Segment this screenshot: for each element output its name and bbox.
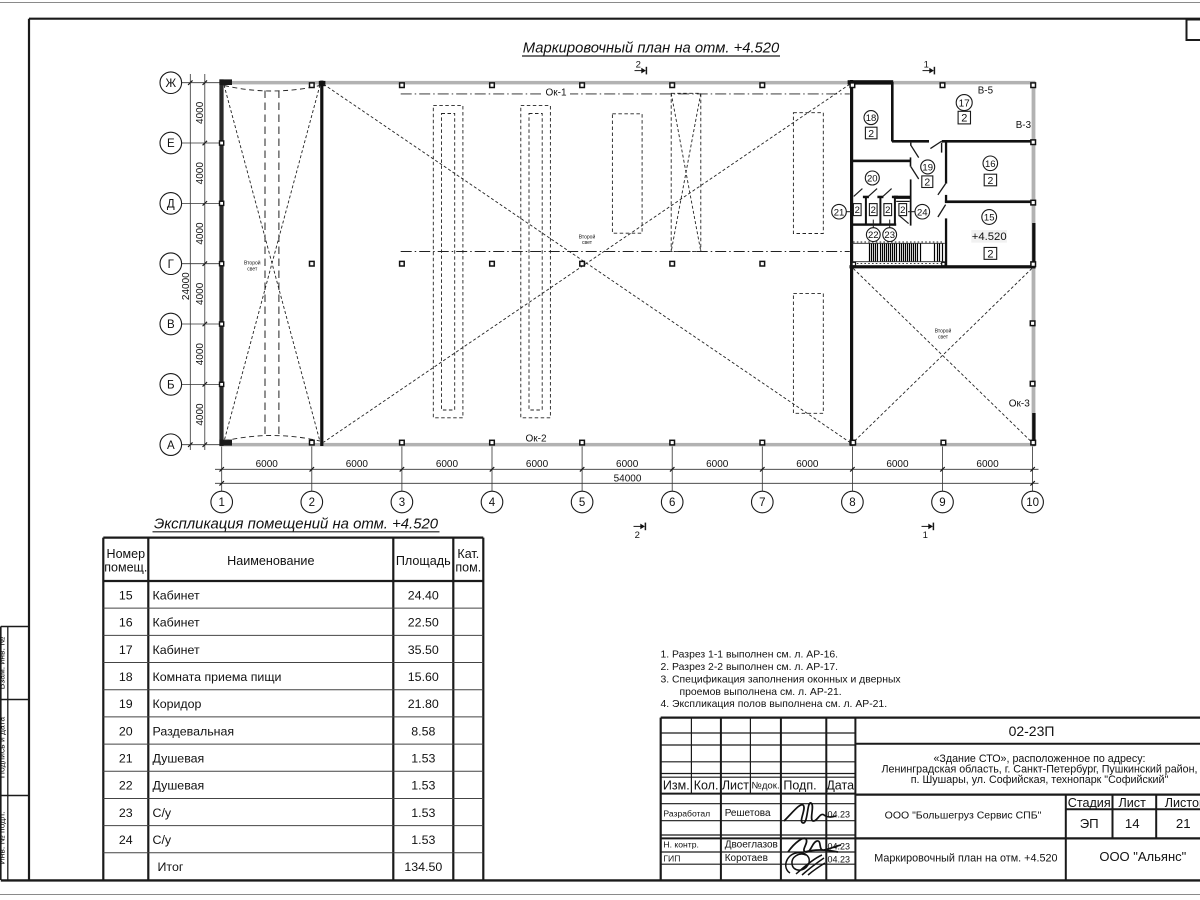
svg-text:1.53: 1.53 [411, 779, 435, 793]
svg-text:Подп.: Подп. [783, 778, 816, 792]
svg-text:22.50: 22.50 [408, 616, 439, 630]
svg-text:21: 21 [834, 207, 845, 218]
svg-text:4. Экспликация полов выполнена: 4. Экспликация полов выполнена см. л. АР… [661, 699, 888, 710]
svg-text:20: 20 [867, 174, 878, 185]
svg-text:17: 17 [959, 98, 971, 109]
svg-text:2. Разрез 2-2 выполнен см. л.: 2. Разрез 2-2 выполнен см. л. АР-17. [661, 662, 839, 673]
svg-text:2: 2 [900, 205, 905, 216]
svg-text:4000: 4000 [195, 282, 206, 305]
svg-text:проемов выполнена см. л. АР-21: проемов выполнена см. л. АР-21. [680, 687, 842, 698]
svg-text:В-3: В-3 [1016, 120, 1032, 131]
svg-text:1: 1 [218, 497, 224, 509]
svg-text:6000: 6000 [526, 459, 549, 470]
svg-text:3. Спецификация заполнения око: 3. Спецификация заполнения оконных и две… [661, 674, 902, 686]
svg-text:С/у: С/у [153, 806, 172, 820]
svg-text:Маркировочный план на отм. +4.: Маркировочный план на отм. +4.520 [523, 41, 780, 57]
svg-text:Изм.: Изм. [663, 778, 690, 792]
svg-text:6000: 6000 [256, 459, 279, 470]
svg-text:Комната приема пищи: Комната приема пищи [153, 670, 282, 684]
svg-text:Ок-2: Ок-2 [525, 434, 546, 445]
svg-text:2: 2 [885, 205, 890, 216]
svg-text:Кат.: Кат. [457, 547, 479, 561]
svg-text:35.50: 35.50 [408, 643, 439, 657]
svg-text:24: 24 [119, 833, 133, 847]
svg-text:1.53: 1.53 [411, 751, 435, 765]
svg-text:4: 4 [489, 497, 496, 509]
svg-text:Кабинет: Кабинет [153, 616, 200, 630]
svg-text:Экспликация помещений на отм.: Экспликация помещений на отм. +4.520 [154, 517, 439, 533]
svg-text:Душевая: Душевая [153, 779, 205, 793]
svg-text:Раздевальная: Раздевальная [153, 724, 235, 738]
svg-text:Маркировочный план на отм. +4.: Маркировочный план на отм. +4.520 [874, 852, 1057, 864]
svg-text:14: 14 [1125, 816, 1140, 831]
svg-text:Ж: Ж [165, 78, 176, 90]
svg-text:2: 2 [309, 497, 315, 509]
svg-text:пом.: пом. [455, 561, 481, 575]
svg-text:ООО "Большегруз Сервис СПБ": ООО "Большегруз Сервис СПБ" [885, 809, 1042, 821]
svg-text:6000: 6000 [796, 459, 819, 470]
svg-text:ЭП: ЭП [1080, 816, 1099, 831]
svg-text:В-5: В-5 [978, 85, 994, 96]
svg-text:Двоеглазов: Двоеглазов [725, 839, 778, 850]
svg-text:23: 23 [119, 806, 133, 820]
svg-text:6000: 6000 [346, 459, 369, 470]
svg-text:4000: 4000 [195, 101, 206, 124]
svg-text:15.60: 15.60 [408, 670, 439, 684]
svg-text:8: 8 [849, 497, 855, 509]
svg-text:Итог: Итог [158, 860, 184, 874]
svg-text:23: 23 [884, 230, 895, 241]
svg-text:24000: 24000 [181, 272, 192, 300]
svg-text:15: 15 [984, 213, 995, 224]
svg-text:1.53: 1.53 [411, 806, 435, 820]
svg-text:6000: 6000 [976, 459, 999, 470]
svg-text:1: 1 [923, 530, 928, 541]
svg-text:24: 24 [917, 207, 928, 218]
svg-text:свет: свет [938, 334, 949, 340]
svg-text:6000: 6000 [616, 459, 639, 470]
svg-text:6000: 6000 [436, 459, 459, 470]
svg-text:2: 2 [961, 113, 967, 125]
svg-text:Ок-3: Ок-3 [1009, 399, 1030, 410]
svg-text:19: 19 [922, 163, 933, 174]
svg-text:Инв. № подл.: Инв. № подл. [0, 812, 7, 865]
svg-text:Душевая: Душевая [153, 751, 205, 765]
svg-text:21: 21 [119, 751, 133, 765]
svg-text:Д: Д [167, 199, 175, 211]
svg-text:2: 2 [635, 530, 640, 541]
svg-text:15: 15 [119, 588, 133, 602]
svg-text:Б: Б [167, 380, 175, 392]
svg-text:2: 2 [855, 205, 860, 216]
svg-text:134.50: 134.50 [404, 860, 442, 874]
svg-text:4000: 4000 [195, 162, 206, 185]
svg-text:2: 2 [868, 128, 874, 140]
svg-text:21.80: 21.80 [408, 697, 439, 711]
svg-text:Кабинет: Кабинет [153, 588, 200, 602]
svg-text:помещ.: помещ. [104, 561, 147, 575]
svg-text:п. Шушары, ул. Софийская, техн: п. Шушары, ул. Софийская, технопарк "Соф… [911, 774, 1169, 786]
svg-text:1. Разрез 1-1 выполнен см. л.: 1. Разрез 1-1 выполнен см. л. АР-16. [661, 650, 839, 661]
svg-text:54000: 54000 [614, 473, 642, 484]
svg-text:19: 19 [119, 697, 133, 711]
svg-text:7: 7 [759, 497, 765, 509]
svg-text:22: 22 [119, 779, 133, 793]
svg-text:6: 6 [669, 497, 675, 509]
svg-text:ГИП: ГИП [663, 853, 680, 863]
svg-text:2: 2 [987, 175, 993, 187]
svg-text:16: 16 [985, 159, 996, 170]
svg-text:Н. контр.: Н. контр. [663, 840, 698, 850]
svg-text:2: 2 [871, 205, 876, 216]
svg-text:Площадь: Площадь [396, 554, 451, 568]
svg-text:2: 2 [924, 176, 930, 188]
svg-text:С/у: С/у [153, 833, 172, 847]
svg-text:6000: 6000 [886, 459, 909, 470]
svg-text:ООО "Альянс": ООО "Альянс" [1099, 849, 1186, 864]
svg-text:17: 17 [119, 643, 133, 657]
svg-text:свет: свет [582, 240, 593, 246]
svg-text:Е: Е [167, 138, 175, 150]
svg-text:2: 2 [987, 248, 993, 260]
svg-text:10: 10 [1026, 497, 1039, 509]
svg-text:Кабинет: Кабинет [153, 643, 200, 657]
svg-text:Лист: Лист [1119, 796, 1147, 810]
svg-text:20: 20 [119, 724, 133, 738]
svg-text:02-23П: 02-23П [1009, 723, 1055, 739]
svg-text:В: В [167, 319, 175, 331]
svg-text:16: 16 [119, 616, 133, 630]
svg-text:Ок-1: Ок-1 [545, 87, 566, 98]
svg-text:21: 21 [1176, 816, 1191, 831]
svg-text:Подпись и дата: Подпись и дата [0, 717, 7, 778]
svg-text:04.23: 04.23 [828, 855, 851, 865]
svg-text:3: 3 [399, 497, 405, 509]
svg-text:Лист: Лист [722, 778, 749, 792]
svg-text:5: 5 [579, 497, 585, 509]
svg-text:4000: 4000 [195, 403, 206, 426]
svg-text:свет: свет [247, 266, 258, 272]
svg-text:Разработал: Разработал [663, 809, 710, 819]
svg-text:24.40: 24.40 [408, 588, 439, 602]
svg-text:1: 1 [924, 59, 929, 70]
svg-text:А: А [167, 440, 175, 452]
svg-text:Номер: Номер [107, 547, 146, 561]
svg-text:Взам. инв. №: Взам. инв. № [0, 637, 7, 690]
svg-text:Дата: Дата [826, 778, 854, 792]
svg-text:6000: 6000 [706, 459, 729, 470]
svg-text:2: 2 [636, 59, 641, 70]
svg-text:9: 9 [939, 497, 945, 509]
svg-text:4000: 4000 [195, 222, 206, 245]
svg-text:Решетова: Решетова [725, 808, 771, 819]
svg-text:Наименование: Наименование [227, 554, 314, 568]
svg-text:4000: 4000 [195, 343, 206, 366]
svg-text:Г: Г [168, 259, 175, 271]
svg-text:1.53: 1.53 [411, 833, 435, 847]
svg-text:Кол.: Кол. [694, 778, 719, 792]
svg-text:04.23: 04.23 [828, 810, 851, 820]
svg-text:Коридор: Коридор [153, 697, 202, 711]
svg-text:Стадия: Стадия [1068, 796, 1111, 810]
svg-text:+4.520: +4.520 [972, 231, 1007, 243]
svg-text:Листов: Листов [1165, 796, 1200, 810]
svg-text:18: 18 [866, 113, 877, 124]
svg-text:8.58: 8.58 [411, 724, 435, 738]
svg-text:18: 18 [119, 670, 133, 684]
svg-text:№док.: №док. [752, 781, 780, 792]
svg-text:Коротаев: Коротаев [725, 853, 768, 864]
svg-text:22: 22 [868, 230, 879, 241]
